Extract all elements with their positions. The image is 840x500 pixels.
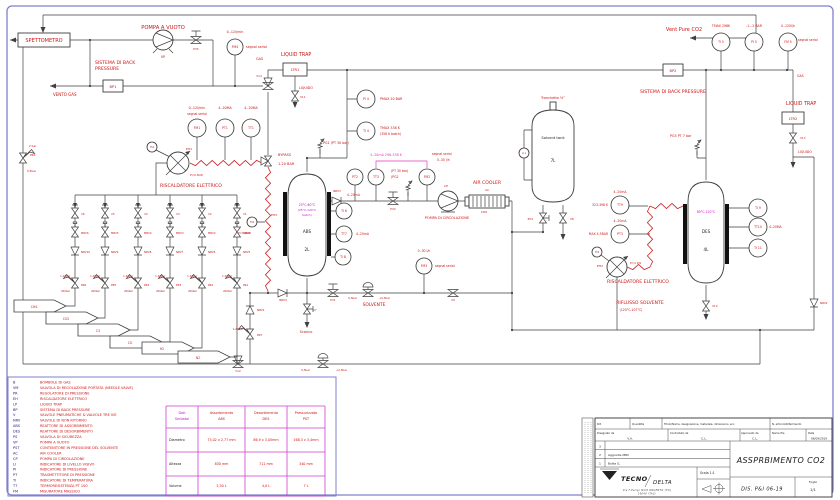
label-pr6: PR6	[81, 283, 86, 287]
instrument-pi-5: PI 5	[745, 33, 763, 51]
label-vento-gas: VENTO GAS	[53, 92, 77, 97]
label-2l: 2L	[305, 247, 311, 252]
legend-desc-pr: REGOLATORE DI PRESSIONE	[40, 391, 90, 395]
label-tronchetto: Tronchetto ½”	[540, 96, 565, 100]
junction-dot	[705, 69, 707, 71]
instrument-li-1: LI 1	[519, 148, 529, 158]
label-sistema-di-back: SISTEMA DI BACK	[95, 60, 136, 66]
tb-foglio-label: Foglio	[809, 480, 818, 484]
logo-delta: DELTA	[653, 480, 672, 486]
label-v2: V2	[208, 212, 212, 216]
label-nrv7: NRV7	[176, 250, 184, 254]
instrument-ti-11: TI 11	[749, 239, 767, 257]
label-pg2: (PG2	[391, 175, 398, 179]
air-cooler	[465, 195, 509, 208]
label-riscaldatore-elettrico: RISCALDATORE ELETTRICO	[607, 279, 669, 285]
tb-titolo: Titolo/Nome, designazione, materiale, di…	[664, 422, 735, 426]
label-0-30-l-h: 0..30 l/h	[418, 249, 431, 253]
label-1-20bar: 1-20bar	[123, 274, 134, 278]
legend-abbr-fm: FM	[13, 490, 18, 494]
tb-controllato-val: C.L.	[701, 437, 707, 441]
legend-desc-vm: VALVOLA DI REGOLAZIONE PORTATA (NEEDLE V…	[40, 386, 134, 390]
instrument-tag: TS3	[595, 251, 600, 254]
junction-dot	[306, 157, 308, 159]
label-2-bar: 2 bar	[29, 144, 37, 148]
label-max-4-5bar: MAX 4,5BAR	[589, 232, 609, 236]
label-nrv5: NRV5	[243, 250, 251, 254]
table-value: 2,30 L	[216, 484, 226, 488]
label-solvente: SOLVENTE	[363, 302, 386, 308]
instrument-tag: TI 6	[340, 209, 347, 213]
instrument-tag: FM1	[194, 126, 200, 130]
legend-abbr-ac: AC	[13, 451, 18, 455]
junction-dot	[511, 329, 513, 331]
legend-abbr-li: LI	[13, 462, 16, 466]
label-mrv5: MRV5	[111, 231, 119, 235]
label-pr3: PR3	[176, 283, 181, 287]
instrument-pt3: PT3	[611, 225, 629, 243]
label-nrv9: NRV9	[111, 250, 119, 254]
table-value: 7 L	[304, 484, 309, 488]
tb-scala: Scala 1:1	[700, 471, 715, 475]
legend-desc-ac: AIR COOLER	[40, 451, 62, 455]
label-0-12l-min: 0..12l/min	[227, 30, 244, 34]
instrument-tag: PI 5	[751, 40, 757, 44]
label-co2: CO2	[63, 317, 70, 321]
label-nrv6: NRV6	[208, 250, 216, 254]
instrument-tag: TI 9	[754, 206, 761, 210]
table-value: 711 mm	[259, 462, 273, 466]
table-colhead-abs: Assorbimento	[210, 411, 233, 415]
legend-abbr-pr: PR	[13, 391, 18, 395]
label-p-4-kw: P=4 kW	[630, 261, 641, 265]
instrument-tag: LI 1	[522, 152, 527, 155]
legend-desc-ti: INDICATORE DI TEMPERATURA	[40, 479, 94, 483]
label-pr5: PR5	[111, 283, 116, 287]
rev-number: 3	[599, 444, 601, 448]
label-pr7: PR7	[257, 333, 263, 337]
instrument-tag: PT1	[222, 126, 228, 130]
tb-quantita: Quantità	[632, 422, 644, 426]
label-4-20ma: 4..20mA	[613, 219, 627, 223]
tb-data-val: 06/09/2019	[811, 437, 827, 441]
label-bypass: BYPASS	[278, 153, 292, 157]
junction-dot	[234, 85, 236, 87]
label-pv5: PV5	[193, 47, 199, 51]
legend-abbr-bp: BP	[13, 408, 18, 412]
rev-text: Aggiunte MRV	[608, 453, 630, 457]
junction-dot	[720, 69, 722, 71]
table-colhead-pst: PST	[303, 417, 310, 421]
instrument-tt9: TT9	[611, 196, 629, 214]
tb-foglio-val: 1/1	[810, 488, 816, 492]
label-pt-30-bar: (PT 30 bar)	[391, 169, 408, 173]
label-cho: CHO	[481, 210, 488, 214]
instrument-tag: TI 11	[753, 246, 762, 250]
legend-abbr-eh: EH	[13, 397, 18, 401]
label-gas: GAS	[256, 57, 263, 61]
label-1-20bar: 1-20bar	[232, 327, 243, 331]
instrument-tag: PT2	[352, 175, 358, 179]
junction-dot	[249, 292, 251, 294]
label-solvent-tank: Solvent tank	[541, 136, 565, 140]
instrument-tt1: TT1	[242, 119, 260, 137]
junction-dot	[542, 231, 544, 233]
label-v1: V1	[243, 212, 247, 216]
gas-cylinder	[178, 351, 230, 363]
label-2-5bar: +2,5bar	[336, 368, 348, 372]
label-bp2: BP2	[670, 69, 677, 73]
label-0-5bar: 0,5bar	[27, 169, 37, 173]
legend-abbr-abs: ABS	[13, 424, 21, 428]
legend-desc-nrv: VALVOLE DI NON RITORNO	[40, 419, 87, 423]
label-gas: GAS	[797, 74, 804, 78]
label-v9: V9	[451, 298, 455, 302]
instrument-tag: FM3	[421, 264, 427, 268]
gas-cylinder	[78, 324, 130, 336]
label-ltr1: LTR1	[291, 68, 300, 72]
label-tmax-298k: TMAX 298K	[711, 24, 731, 28]
label-des: DES	[702, 229, 711, 234]
label-ch4: CH4	[31, 305, 37, 309]
pid-sheet: FM4FM1PT1TT1PI 4TI 4TI 5PI 5FM 5PT2TT3FM…	[0, 0, 840, 500]
label-0-120l-h: 0..120l/h	[781, 24, 795, 28]
junction-dot	[346, 69, 348, 71]
instrument-tag: FM4	[232, 45, 238, 49]
table-value: 86,9 x 3,05mm	[253, 438, 278, 442]
tb-disegnato-val: V.A.	[627, 437, 633, 441]
label-120-c-107-c: (120°C-107°C)	[620, 308, 643, 312]
tb-approvato: Approvato da	[741, 431, 759, 435]
label-v14: V14	[256, 74, 262, 78]
label-200bar: 200bar	[188, 289, 198, 293]
instrument-ts2: TS2	[247, 217, 257, 227]
logo-tecno: TECNO	[621, 475, 648, 483]
label-pompa-a-vuoto: POMPA A VUOTO	[141, 25, 185, 31]
label-liquido: LIQUIDO	[299, 86, 313, 90]
label-pv2: PV2	[390, 207, 396, 211]
legend-desc-fm: MISURATORE MASSICO	[40, 490, 80, 494]
label-bp1: BP1	[110, 85, 117, 89]
instrument-tag: TI 4	[362, 129, 369, 133]
label-pr1: PR1	[243, 283, 248, 287]
label-segnal-serial: segnal serial	[246, 45, 267, 49]
label-4l: 4L	[704, 247, 710, 252]
junction-dot	[786, 69, 788, 71]
instrument-tag: FM2	[424, 175, 430, 179]
tb-nome-file: Nome file	[772, 431, 785, 435]
legend-desc-lp: LIQUID TRAP	[40, 402, 62, 406]
table-value: 830 mm	[215, 462, 229, 466]
instrument-ts1: TS1	[147, 142, 157, 152]
tb-controllato: Controllato da	[670, 431, 689, 435]
label-323-398-k: 323-398 K	[592, 203, 609, 207]
title-block: Rif. Quantità Titolo/Nome, designazione,…	[582, 418, 832, 497]
label-0-12l-min: 0..12l/min	[189, 106, 206, 110]
label-v11: V11	[300, 95, 306, 99]
label-v13: V13	[800, 136, 806, 140]
label-200bar: 200bar	[91, 289, 101, 293]
label-nrv4: NRV4	[279, 298, 287, 302]
label-4-20ma: 4..20MA	[218, 106, 232, 110]
table-corner: Dati	[179, 411, 186, 415]
instrument-fm2: FM2	[419, 169, 435, 185]
label-nrv3: NRV3	[333, 189, 341, 193]
label-0-5bar: 0,5bar	[348, 296, 358, 300]
legend-desc-vp: POMPA A VUOTO	[40, 440, 70, 444]
tb-disegnato: Disegnato da	[597, 431, 615, 435]
legend-desc-b: BOMBOLE DI GAS	[40, 381, 71, 385]
tb-articolo: N. articolo/Riferimento	[772, 422, 802, 426]
label-scarico: Scarico	[300, 330, 313, 334]
legend-abbr-des: DES	[13, 430, 21, 434]
instrument-tag: TS2	[250, 221, 255, 224]
instrument-ti-8: TI 8	[335, 249, 351, 265]
legend-desc-li: INDICATORE DI LIVELLO VISIVO	[40, 462, 95, 466]
instrument-ti-4: TI 4	[357, 122, 375, 140]
label-spettometro: SPETTOMETRO	[25, 38, 62, 44]
label-abs: ABS	[303, 229, 312, 234]
table-rowlabel-volume: Volume	[169, 484, 182, 488]
legend-desc-pi: INDICATORE DI PRESSIONE	[40, 468, 87, 472]
label-4-20ma: 4..20mA	[613, 190, 627, 194]
label-pmax-20-bar: PMAX 20 BAR	[380, 97, 403, 101]
rev-number: 1	[599, 462, 601, 466]
pid-drawing: FM4FM1PT1TT1PI 4TI 4TI 5PI 5FM 5PT2TT3FM…	[0, 0, 840, 500]
label-25-c-60-c: 25°C-60°C	[299, 203, 315, 207]
instrument-tt7: TT7	[336, 226, 352, 242]
label-pr4: PR4	[144, 283, 149, 287]
junction-dot	[267, 292, 269, 294]
label-1-2-bar: -1...2 BAR	[746, 24, 763, 28]
table-colhead-pst: Pressurizzato	[295, 411, 317, 415]
label-v6: V6	[81, 212, 85, 216]
label-25-c-120-c: (25°C-120°C	[298, 208, 316, 212]
legend-abbr-vp: VP	[13, 440, 18, 444]
table-value: 4,0 L	[262, 484, 270, 488]
logo-address2: 10040 ITALY	[638, 493, 657, 496]
label-v8: V8	[570, 217, 574, 221]
label-tmax-338-k: TMAX 338 K	[379, 126, 401, 130]
label-1-20bar: 1-20bar	[90, 274, 101, 278]
legend-abbr-cp: CP	[13, 457, 18, 461]
tb-approvato-val: C.L.	[752, 437, 758, 441]
label-200bar: 200bar	[156, 289, 166, 293]
gas-cylinder	[14, 300, 66, 312]
label-v7: V7	[313, 308, 317, 312]
label-4-20ma-298-338-k: 4..20mA 298-338 K	[370, 153, 403, 157]
legend-abbr-nrv: NRV	[13, 419, 21, 423]
legend-desc-v: VALVOLE PNEUMATICHE & VALVOLE TRE VIE	[40, 413, 117, 417]
fineprint-strip	[582, 418, 593, 497]
instrument-tag: TT9	[616, 203, 623, 207]
junction-dot	[89, 39, 91, 41]
instrument-pi-4: PI 4	[357, 90, 375, 108]
label-segnal-serial: segnal serial	[435, 264, 455, 268]
label-1-20-bar: 1-20 BAR	[278, 162, 295, 166]
label-1-20bar: 1-20bar	[155, 274, 166, 278]
label-segnal-serial: segnal serial	[798, 38, 818, 42]
legend-abbr-pst: PST	[13, 446, 20, 450]
junction-dot	[306, 292, 308, 294]
label-1-20bar: 1-20bar	[60, 274, 71, 278]
instrument-tag: TT7	[340, 232, 347, 236]
label-nrv1: NRV1	[257, 308, 265, 312]
label-v3: V3	[176, 212, 180, 216]
label-0-5bar: 0,5bar	[301, 368, 311, 372]
instrument-fm-5: FM 5	[779, 33, 797, 51]
label-200bar: 200bar	[61, 289, 71, 293]
label-pg1-pt-30-bar: PG1 (PT 30 bar)	[323, 141, 349, 145]
abs-column	[283, 174, 331, 276]
junction-dot	[511, 292, 513, 294]
instrument-pt2: PT2	[347, 169, 363, 185]
label-sistema-di-back-pressure: SISTEMA DI BACK PRESSURE	[640, 89, 706, 95]
legend-abbr-vm: VM	[13, 386, 18, 390]
legend-abbr-lp: LP	[13, 402, 17, 406]
label-h2: H2	[160, 347, 164, 351]
label-7l: 7L	[551, 158, 557, 163]
label-200bar: 200bar	[223, 289, 233, 293]
label-358-k-batch: (358 K batch)	[380, 132, 401, 136]
label-pr0: PR0	[30, 153, 36, 157]
label-v4: V4	[144, 212, 148, 216]
solvent-tank	[532, 102, 574, 202]
label-mrv6: MRV6	[81, 231, 89, 235]
table-rowlabel-altezza: Altezza	[169, 462, 181, 466]
label-mrv2: MRV2	[208, 231, 216, 235]
legend-desc-pt: TRASMETTITORE DI PRESSIONE	[39, 473, 95, 477]
instrument-tt10: TT10	[749, 218, 767, 236]
label-batch: batch)	[302, 213, 311, 217]
label-c3: C3	[96, 329, 100, 333]
label-nrv10: NRV10	[81, 250, 90, 254]
gas-cylinder	[46, 312, 98, 324]
label-nrv2: NRV2	[820, 301, 828, 305]
label-nrv8: NRV8	[144, 250, 152, 254]
table-value: 340 mm	[299, 462, 313, 466]
label-segnal-serial: segnal serial	[432, 152, 452, 156]
label-vp: VP	[161, 55, 165, 59]
vacuum-pump	[153, 30, 173, 53]
tb-rif: Rif.	[597, 422, 602, 426]
label-liquid-trap: LIQUID TRAP	[281, 52, 311, 58]
label-liquid-trap: LIQUID TRAP	[786, 101, 816, 107]
table-value: 168,3 x 3,4mm	[293, 438, 318, 442]
tb-data-label: Data	[808, 431, 815, 435]
label-v10: V10	[712, 304, 718, 308]
instrument-ts3: TS3	[592, 247, 602, 257]
instrument-fm1: FM1	[188, 119, 206, 137]
instrument-tag: TI 5	[717, 40, 724, 44]
label-liquido: LIQUIDO	[798, 150, 812, 154]
instrument-tag: TT1	[247, 126, 254, 130]
instrument-tt3: TT3	[368, 169, 384, 185]
legend-desc-eh: RISCALDATORE ELETTRICO	[40, 397, 87, 401]
instrument-tag: TT10	[753, 225, 762, 229]
label-v12: V12	[235, 369, 241, 373]
label-n2: N2	[196, 356, 200, 360]
label-1-20bar: 1-20bar	[187, 274, 198, 278]
label-cp: CP	[444, 184, 448, 188]
legend-desc-bp: SISTEMA DI BACK PRESSURE	[40, 408, 90, 412]
label-pv1: PV1	[330, 298, 336, 302]
label-v5: V5	[111, 212, 115, 216]
table-rowlabel-diametro: Diametro	[169, 438, 185, 442]
label-pv4: PV4	[528, 217, 534, 221]
label-vent-pure-co2: Vent Pure CO2	[666, 27, 702, 33]
label-eh1: EH1	[186, 147, 192, 151]
instrument-ti-6: TI 6	[336, 203, 352, 219]
instrument-ti-5: TI 5	[712, 33, 730, 51]
label-80-c-120-c: 80°C-120°C	[697, 210, 715, 214]
label-200bar: 200bar	[124, 289, 134, 293]
rev-number: 2	[599, 453, 601, 457]
label-p-0-5kw: P=0,5kW	[190, 173, 203, 177]
table-colhead-abs: ABS	[218, 417, 225, 421]
junction-dot	[89, 85, 91, 87]
label-riflusso-solvente: RIFLUSSO SOLVENTE	[616, 300, 664, 306]
label-0-30-l-h: 0..30 l/h	[437, 158, 450, 162]
label-pg3-pt-7-bar: PG3 PT 7 bar	[670, 134, 692, 138]
instrument-ti-9: TI 9	[749, 199, 767, 217]
junction-dot	[511, 231, 513, 233]
label-co: CO	[128, 341, 133, 345]
table-value: 73,02 x 2,77 mm	[207, 438, 235, 442]
instrument-tag: PT3	[617, 232, 623, 236]
junction-dot	[759, 329, 761, 331]
junction-dot	[423, 292, 425, 294]
instrument-fm3: FM3	[416, 258, 432, 274]
rev-text: Butta G.	[608, 462, 620, 466]
legend-desc-abs: REATTORE DI ASSORBIMENTO	[40, 424, 93, 428]
table-colhead-des: DES	[263, 417, 270, 421]
tb-main-title: ASSPRBIMENTO CO2	[736, 456, 826, 465]
instrument-tag: FM 5	[784, 40, 791, 44]
label-mrv4: MRV4	[144, 231, 152, 235]
instrument-fm4: FM4	[227, 39, 243, 55]
legend-abbr-tt: TT	[12, 484, 18, 488]
legend-abbr-pi: PI	[13, 468, 16, 472]
label-eh2: EH2	[597, 264, 603, 268]
label-eh3: EH3	[271, 213, 277, 217]
legend-desc-tt: TERMORESISTENZA PT 100	[39, 484, 88, 488]
legend-abbr-ti: TI	[12, 479, 16, 483]
tb-dis-number: DIS. P&I 06-19	[741, 487, 783, 493]
junction-dot	[753, 69, 755, 71]
label-air-cooler: AIR COOLER	[473, 180, 502, 186]
label-pr2: PR2	[208, 283, 213, 287]
instrument-tag: TT3	[372, 175, 379, 179]
label-4-20ma: 4..20MA	[769, 225, 783, 229]
label-pressure: PRESSURE	[95, 66, 119, 72]
label-0-5bar: +0,5bar	[379, 296, 391, 300]
instrument-tag: PI 4	[363, 97, 369, 101]
label-4-20ma: 4..20MA	[244, 106, 258, 110]
label-segnal-serial: segnal serial	[187, 112, 207, 116]
label-1-20bar: 1-20bar	[222, 274, 233, 278]
label-ltr2: LTR2	[789, 117, 798, 121]
label-4-20ma: 4..20mA	[356, 232, 370, 236]
label-4-20ma: 4..20mA	[347, 193, 361, 197]
table-corner: Serbatoi	[175, 417, 189, 421]
label-mrv3: MRV3	[176, 231, 184, 235]
legend-desc-ps: VALVOLA DI SICUREZZA	[40, 435, 82, 439]
instrument-tag: TI 8	[339, 255, 346, 259]
table-colhead-des: Desorbimento	[254, 411, 278, 415]
instrument-tag: TS1	[150, 146, 155, 149]
instrument-pt1: PT1	[216, 119, 234, 137]
